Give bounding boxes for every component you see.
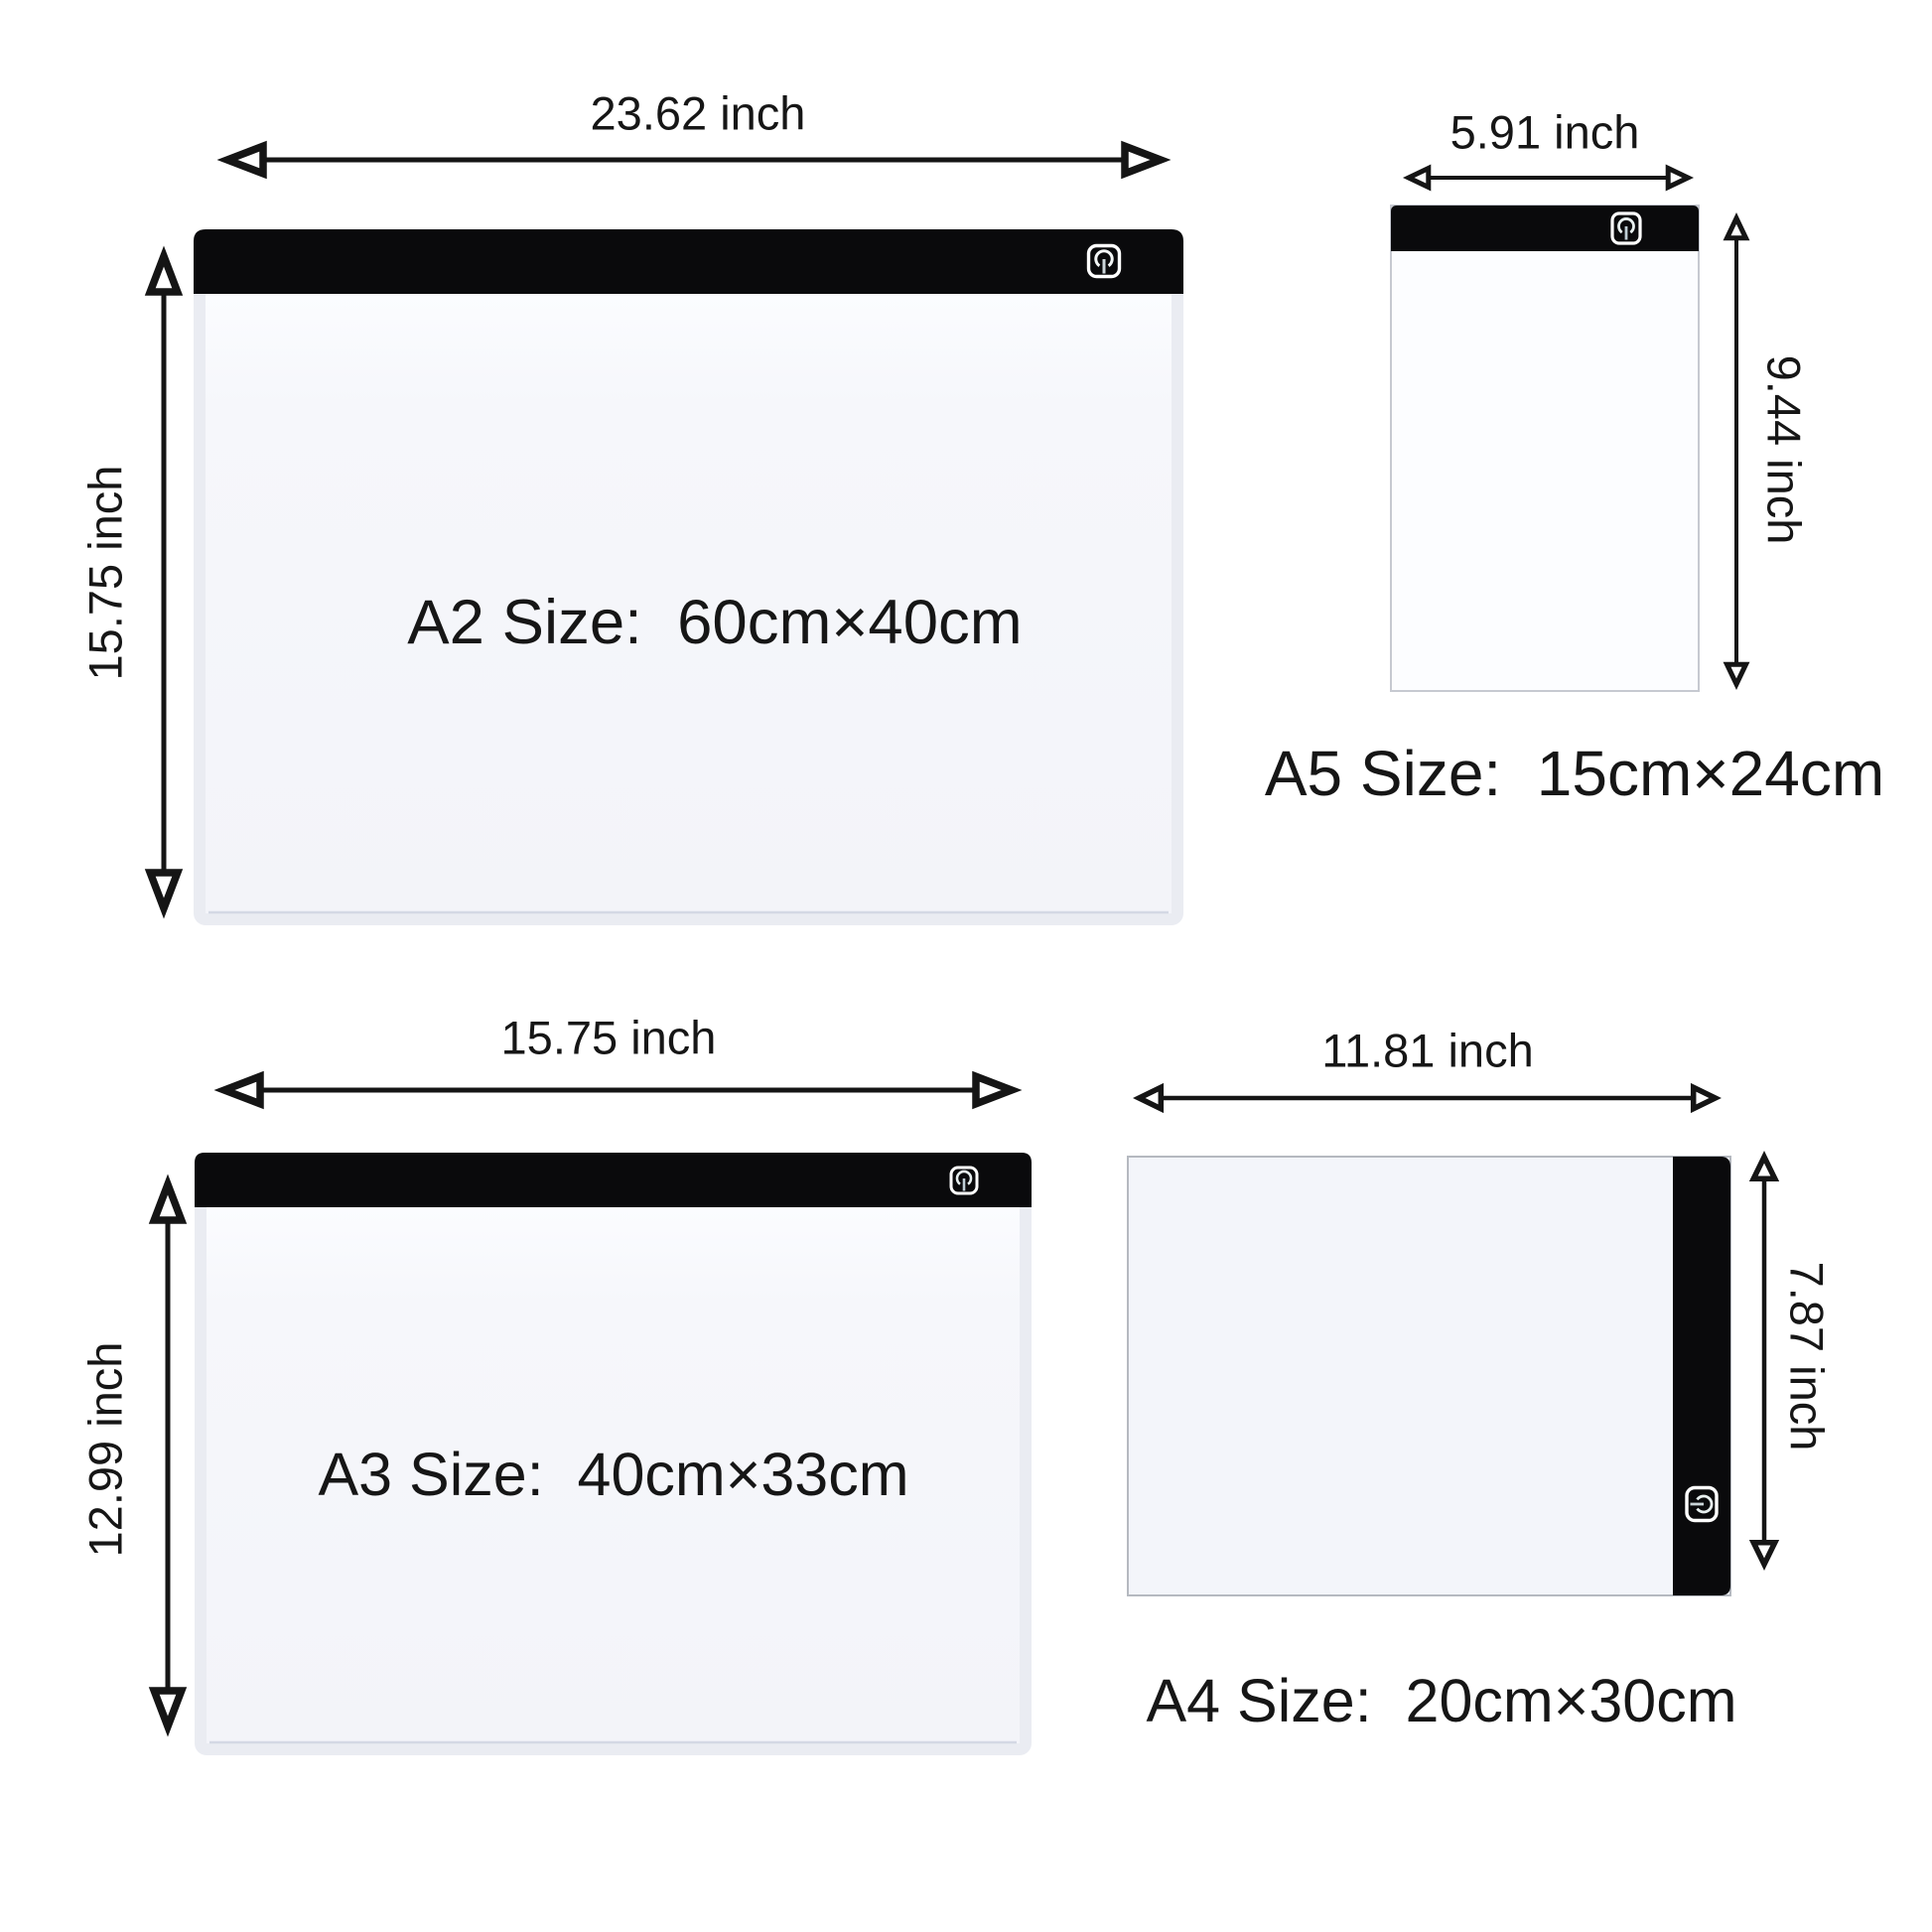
svg-text:15.75 inch: 15.75 inch — [501, 1012, 717, 1064]
svg-text:A3 Size: 40cm×33cm: A3 Size: 40cm×33cm — [318, 1441, 908, 1508]
svg-text:11.81 inch: 11.81 inch — [1321, 1025, 1533, 1077]
svg-text:A2 Size: 60cm×40cm: A2 Size: 60cm×40cm — [407, 588, 1022, 657]
svg-text:23.62 inch: 23.62 inch — [591, 87, 806, 140]
svg-text:A4 Size: 20cm×30cm: A4 Size: 20cm×30cm — [1146, 1667, 1736, 1734]
svg-text:9.44 inch: 9.44 inch — [1758, 355, 1811, 545]
svg-text:A5 Size: 15cm×24cm: A5 Size: 15cm×24cm — [1265, 738, 1884, 809]
svg-text:12.99 inch: 12.99 inch — [79, 1342, 132, 1558]
svg-text:15.75 inch: 15.75 inch — [79, 466, 132, 681]
svg-text:5.91 inch: 5.91 inch — [1450, 106, 1640, 159]
svg-text:7.87 inch: 7.87 inch — [1781, 1262, 1834, 1451]
